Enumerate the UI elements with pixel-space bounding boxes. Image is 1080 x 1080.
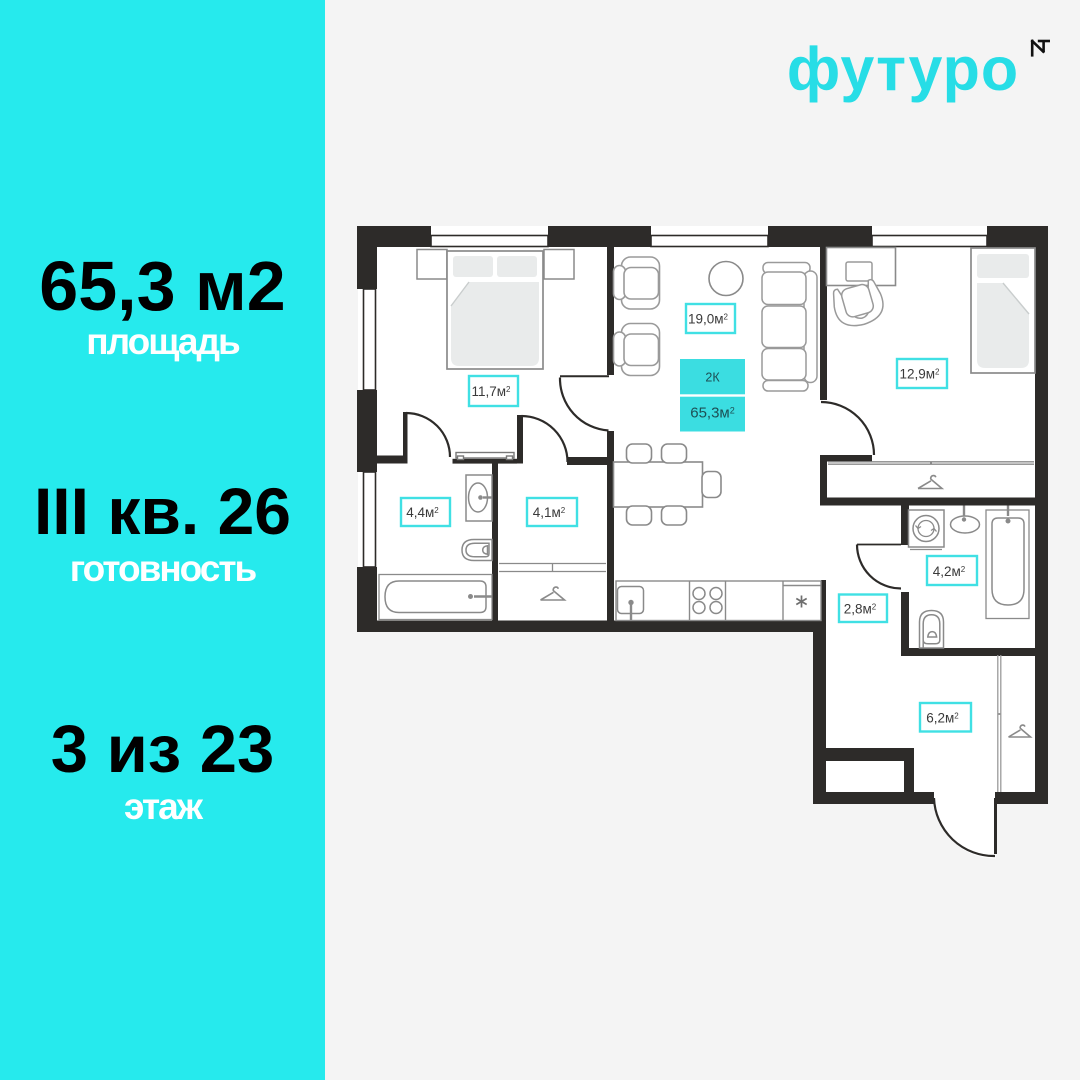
- svg-text:2К: 2К: [705, 371, 720, 385]
- svg-text:11,7м2: 11,7м2: [471, 384, 511, 399]
- svg-text:12,9м2: 12,9м2: [899, 367, 940, 382]
- svg-text:65,3м2: 65,3м2: [690, 405, 735, 422]
- svg-text:19,0м2: 19,0м2: [688, 312, 729, 327]
